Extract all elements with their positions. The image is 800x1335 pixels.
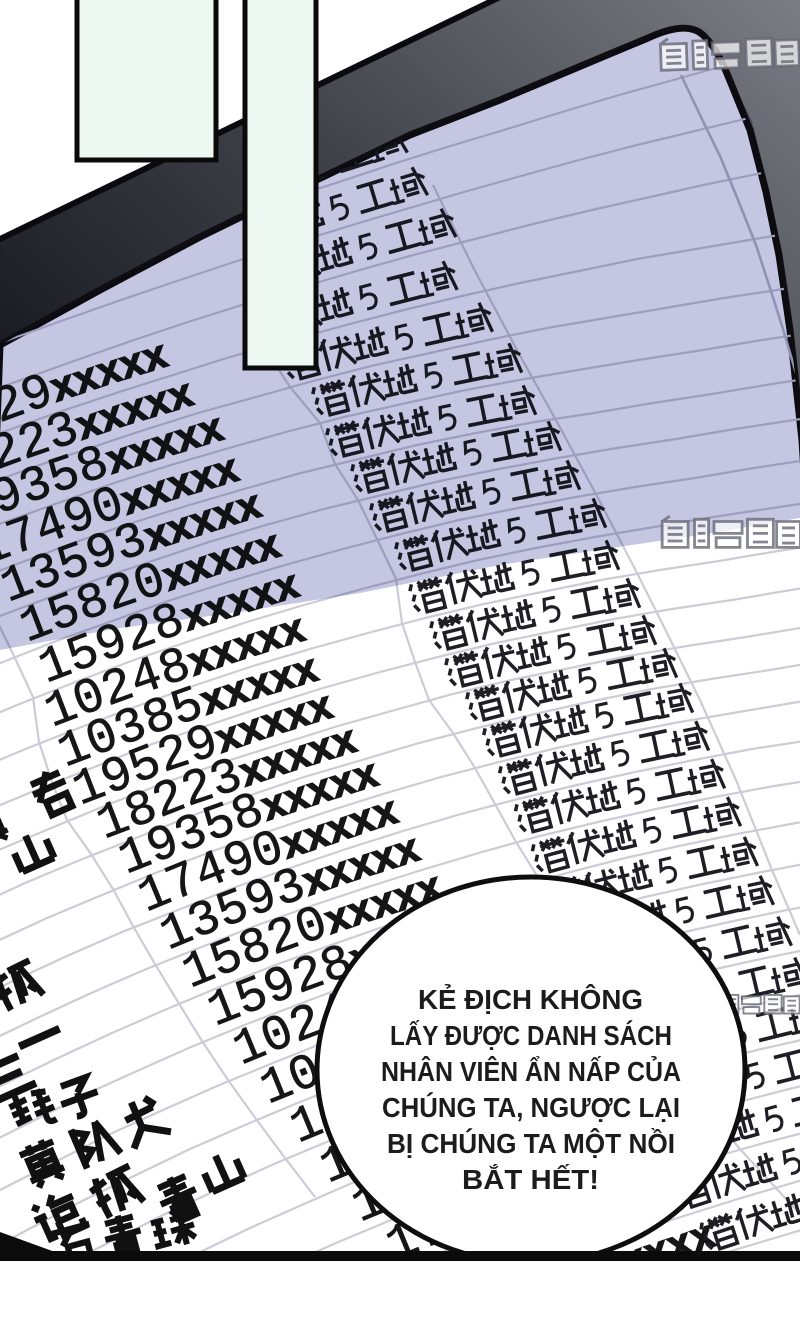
- svg-text:KẺ ĐỊCH KHÔNG: KẺ ĐỊCH KHÔNG: [418, 983, 643, 1015]
- svg-text:BỊ CHÚNG TA MỘT NỒI: BỊ CHÚNG TA MỘT NỒI: [387, 1127, 675, 1159]
- svg-text:NHÂN VIÊN ẨN NẤP CỦA: NHÂN VIÊN ẨN NẤP CỦA: [381, 1055, 681, 1087]
- svg-text:LẤY ĐƯỢC DANH SÁCH: LẤY ĐƯỢC DANH SÁCH: [390, 1020, 672, 1051]
- svg-text:CHÚNG TA, NGƯỢC LẠI: CHÚNG TA, NGƯỢC LẠI: [382, 1092, 680, 1123]
- svg-text:BẮT HẾT!: BẮT HẾT!: [462, 1164, 599, 1195]
